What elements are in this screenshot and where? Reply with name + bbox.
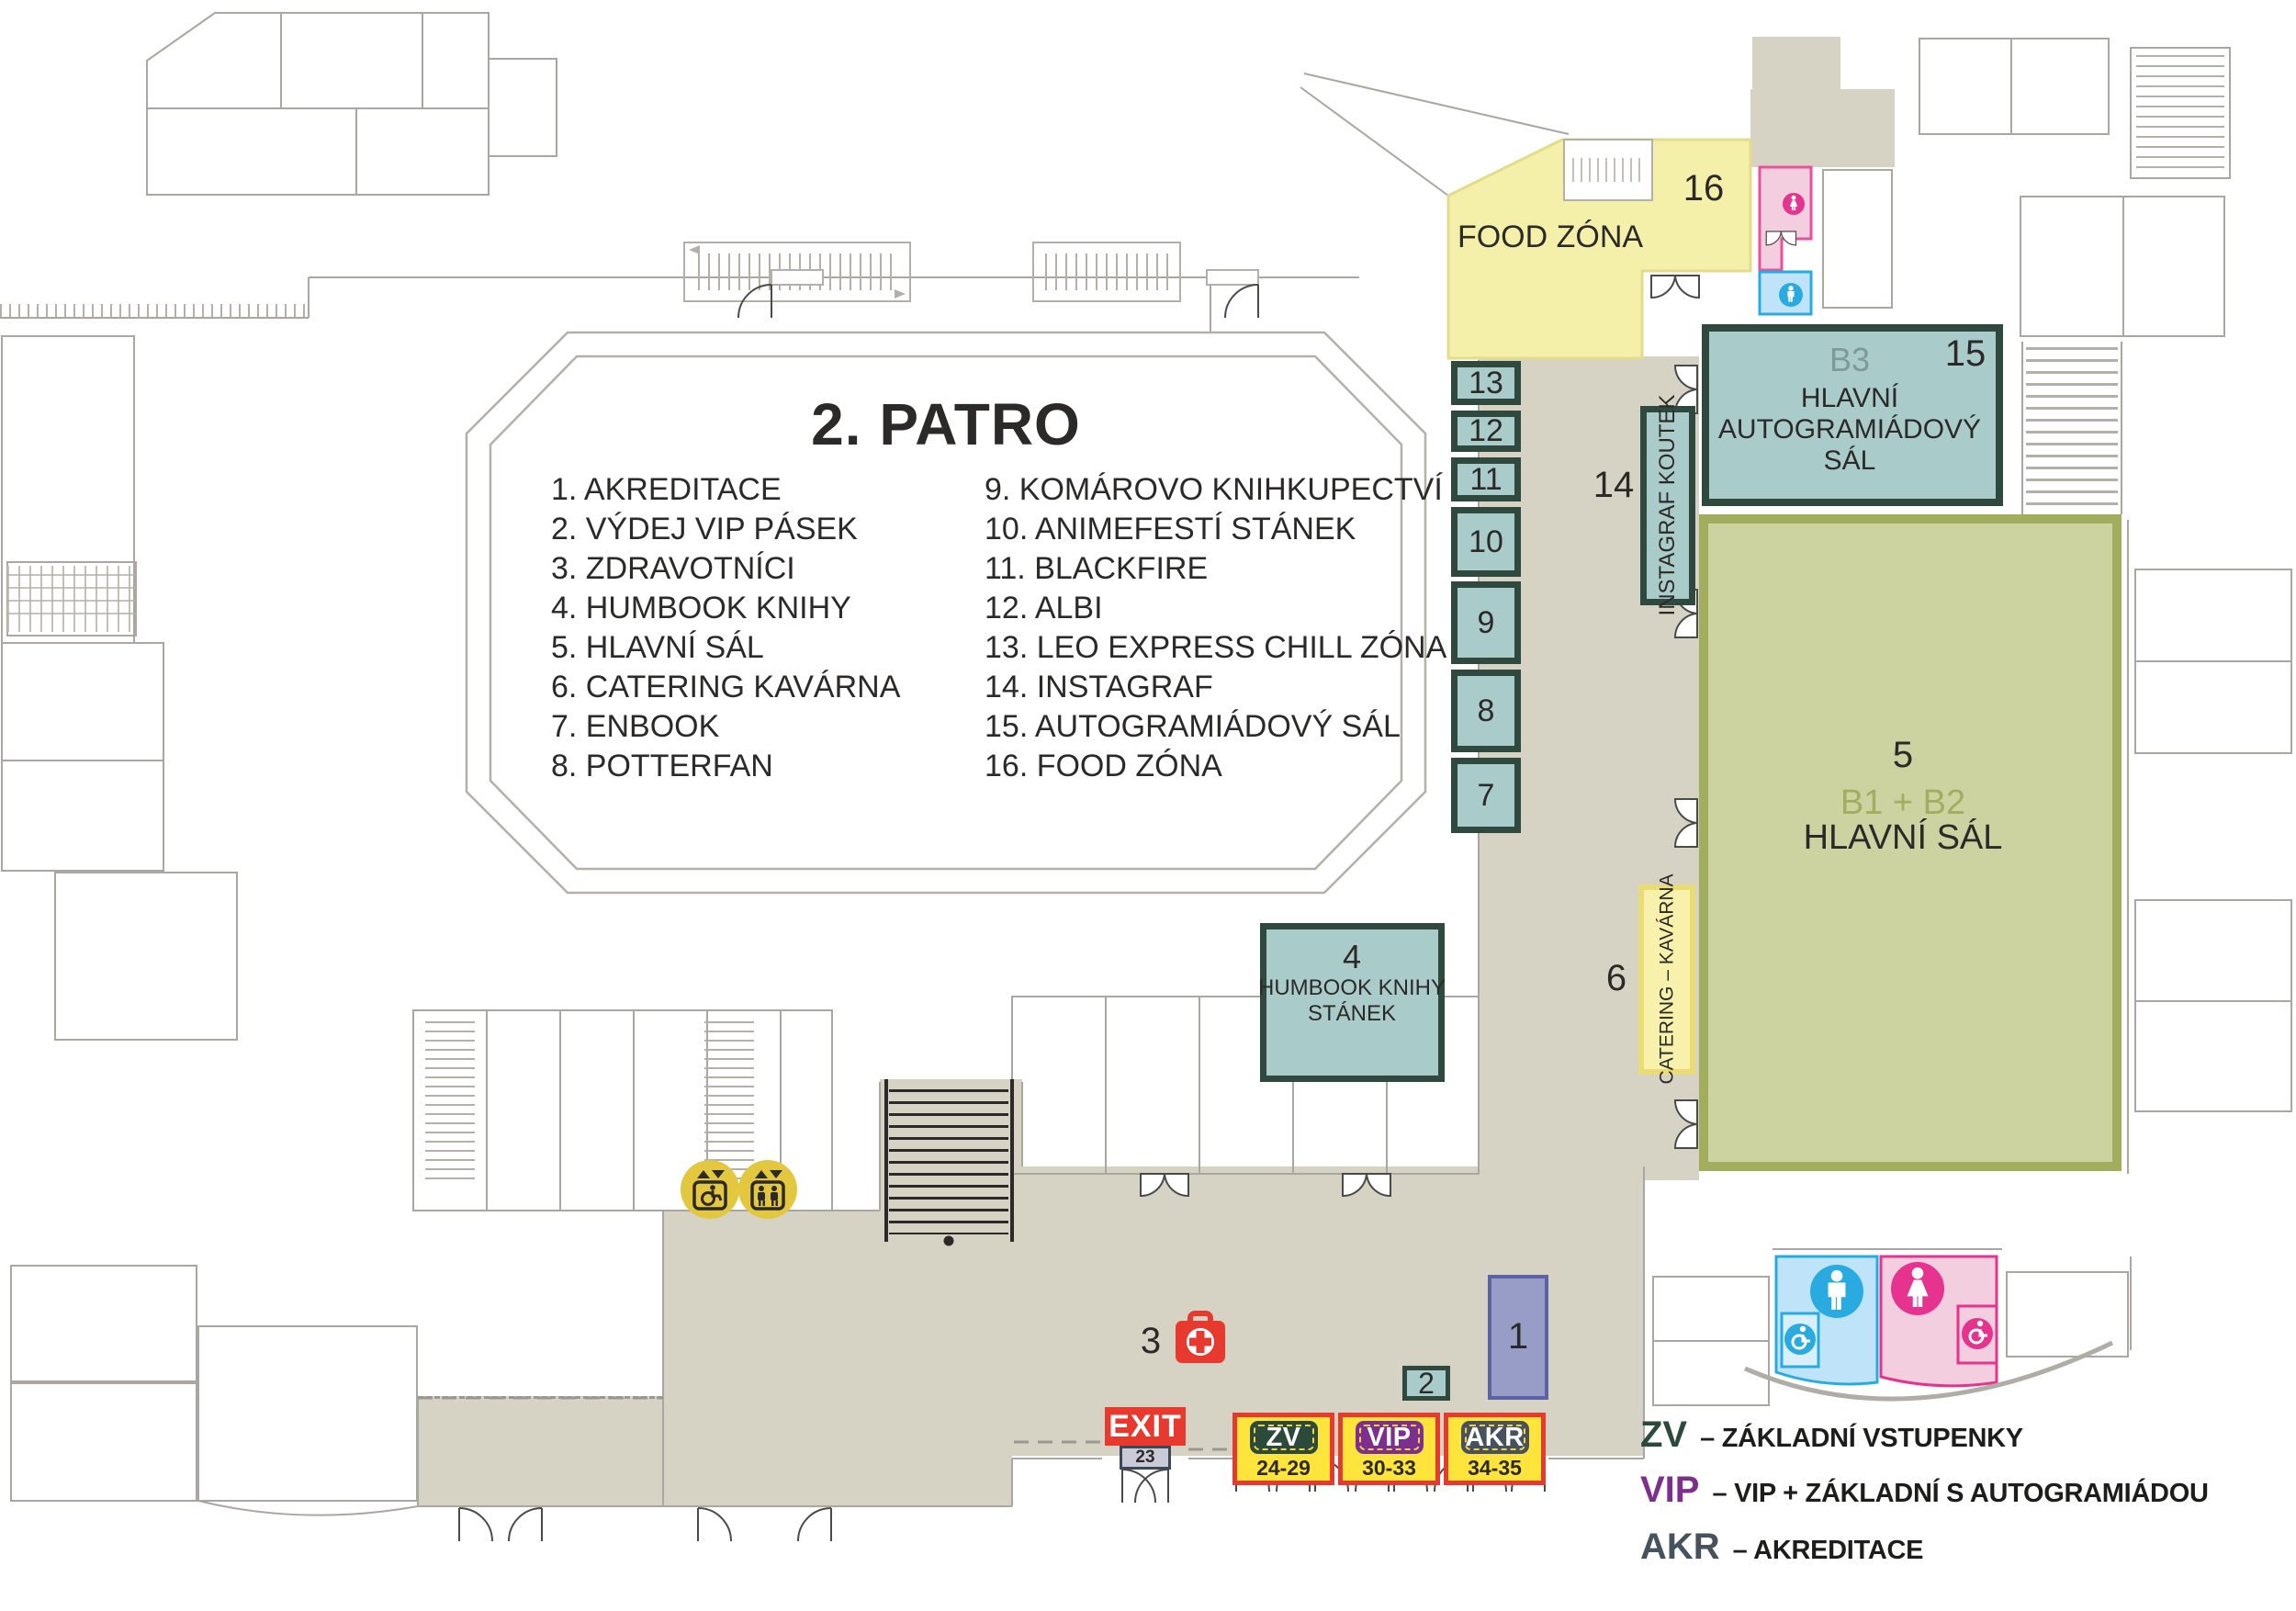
legend-item: 6. CATERING KAVÁRNA	[551, 670, 900, 705]
main-hall-code: B1 + B2	[1840, 785, 1965, 820]
ticket-legend-zv: ZV – ZÁKLADNÍ VSTUPENKY	[1640, 1414, 2023, 1456]
stall-box-13: 13	[1451, 361, 1521, 405]
ticket-range: 24-29	[1256, 1456, 1311, 1481]
elevator-icon	[738, 1160, 797, 1219]
stall-number: 12	[1469, 413, 1503, 449]
main-hall-number: 5	[1893, 737, 1913, 773]
ticket-legend-desc: – AKREDITACE	[1733, 1536, 1923, 1566]
ticket-range: 30-33	[1362, 1456, 1416, 1481]
humbook-line1: HUMBOOK KNIHY	[1258, 977, 1446, 999]
stall-number: 9	[1478, 605, 1495, 641]
floor-plan-canvas: 13 12 11 10 9 8 7 2. PATRO 1. AKREDITACE…	[0, 0, 2296, 1611]
ticket-code: ZV	[1266, 1423, 1300, 1453]
ticket-legend-desc: – ZÁKLADNÍ VSTUPENKY	[1700, 1424, 2023, 1454]
b3-number: 15	[1945, 335, 1986, 372]
legend-item: 13. LEO EXPRESS CHILL ZÓNA	[985, 630, 1446, 666]
restroom-men	[1776, 1256, 1877, 1384]
legend-item: 7. ENBOOK	[551, 709, 719, 745]
legend-item: 1. AKREDITACE	[551, 472, 782, 508]
ticket-legend-desc: – VIP + ZÁKLADNÍ S AUTOGRAMIÁDOU	[1712, 1479, 2208, 1509]
ticket-legend-akr: AKR – AKREDITACE	[1640, 1527, 1923, 1568]
wc-women-top	[1760, 167, 1811, 270]
exit-door-number: 23	[1120, 1446, 1171, 1470]
stall-box-9: 9	[1451, 581, 1521, 664]
humbook-line2: STÁNEK	[1308, 1003, 1396, 1025]
stall-number: 11	[1469, 462, 1502, 498]
stall-box-10: 10	[1451, 507, 1521, 577]
legend-item: 12. ALBI	[985, 591, 1103, 626]
first-aid-icon	[1176, 1313, 1225, 1363]
stall-box-11: 11	[1451, 457, 1521, 501]
ticket-legend-code: VIP	[1640, 1470, 1699, 1511]
ticket-booth-akr: AKR 34-35	[1444, 1413, 1546, 1485]
main-staircase	[886, 1079, 1012, 1246]
escalator-icon-group	[684, 242, 1180, 301]
legend-item: 14. INSTAGRAF	[985, 670, 1213, 705]
stall-number: 8	[1478, 693, 1495, 729]
wc-men-top	[1760, 272, 1811, 314]
legend-item: 15. AUTOGRAMIÁDOVÝ SÁL	[985, 709, 1401, 745]
stall-box-12: 12	[1451, 411, 1521, 452]
legend-item: 10. ANIMEFESTÍ STÁNEK	[985, 512, 1356, 547]
instagraf-number: 14	[1593, 467, 1635, 503]
hatched-wall	[0, 310, 309, 614]
stall-number: 7	[1478, 778, 1495, 814]
catering-label: CATERING – KAVÁRNA	[1658, 873, 1677, 1084]
stall-box-7: 7	[1451, 758, 1521, 833]
legend-item: 4. HUMBOOK KNIHY	[551, 591, 851, 626]
ticket-legend-vip: VIP – VIP + ZÁKLADNÍ S AUTOGRAMIÁDOU	[1640, 1470, 2209, 1511]
doors	[459, 231, 1795, 1541]
legend-item: 11. BLACKFIRE	[985, 551, 1208, 587]
ticket-legend-code: AKR	[1640, 1527, 1720, 1568]
legend-item: 5. HLAVNÍ SÁL	[551, 630, 764, 666]
stall-number: 13	[1469, 366, 1503, 401]
b3-name-line3: SÁL	[1824, 447, 1876, 475]
legend-item: 9. KOMÁROVO KNIHKUPECTVÍ	[985, 472, 1443, 508]
stall-number: 10	[1469, 524, 1503, 560]
ticket-booth-vip: VIP 30-33	[1338, 1413, 1440, 1485]
restroom-women	[1881, 1256, 1997, 1386]
zv-ticket-icon: ZV	[1250, 1421, 1318, 1454]
vip-ticket-icon: VIP	[1356, 1421, 1424, 1454]
b3-name-line2: AUTOGRAMIÁDOVÝ	[1718, 416, 1981, 444]
legend-item: 3. ZDRAVOTNÍCI	[551, 551, 795, 587]
ticket-code: VIP	[1367, 1423, 1411, 1453]
akr-ticket-icon: AKR	[1461, 1421, 1529, 1454]
food-zone-number: 16	[1683, 170, 1725, 207]
ticket-booth-zv: ZV 24-29	[1232, 1413, 1334, 1485]
legend-item: 16. FOOD ZÓNA	[985, 749, 1222, 784]
food-zone-label: FOOD ZÓNA	[1458, 221, 1643, 253]
b3-code: B3	[1829, 344, 1870, 377]
akreditace-number: 1	[1508, 1318, 1528, 1355]
accessible-elevator-icon	[681, 1160, 739, 1219]
legend-item: 2. VÝDEJ VIP PÁSEK	[551, 512, 858, 547]
humbook-number: 4	[1343, 941, 1361, 974]
vip-pickup-number: 2	[1418, 1369, 1435, 1398]
exit-sign: EXIT	[1105, 1407, 1186, 1446]
catering-number: 6	[1606, 960, 1626, 997]
legend-item: 8. POTTERFAN	[551, 749, 773, 784]
ticket-legend-code: ZV	[1640, 1414, 1687, 1456]
main-hall-name: HLAVNÍ SÁL	[1804, 820, 2003, 855]
ticket-code: AKR	[1465, 1423, 1524, 1453]
ticket-range: 34-35	[1468, 1456, 1522, 1481]
instagraf-label: INSTAGRAF KOUTEK	[1657, 395, 1679, 616]
medic-number: 3	[1141, 1323, 1161, 1359]
b3-name-line1: HLAVNÍ	[1801, 385, 1898, 412]
floor-title: 2. PATRO	[811, 395, 1081, 454]
stall-box-8: 8	[1451, 670, 1521, 752]
